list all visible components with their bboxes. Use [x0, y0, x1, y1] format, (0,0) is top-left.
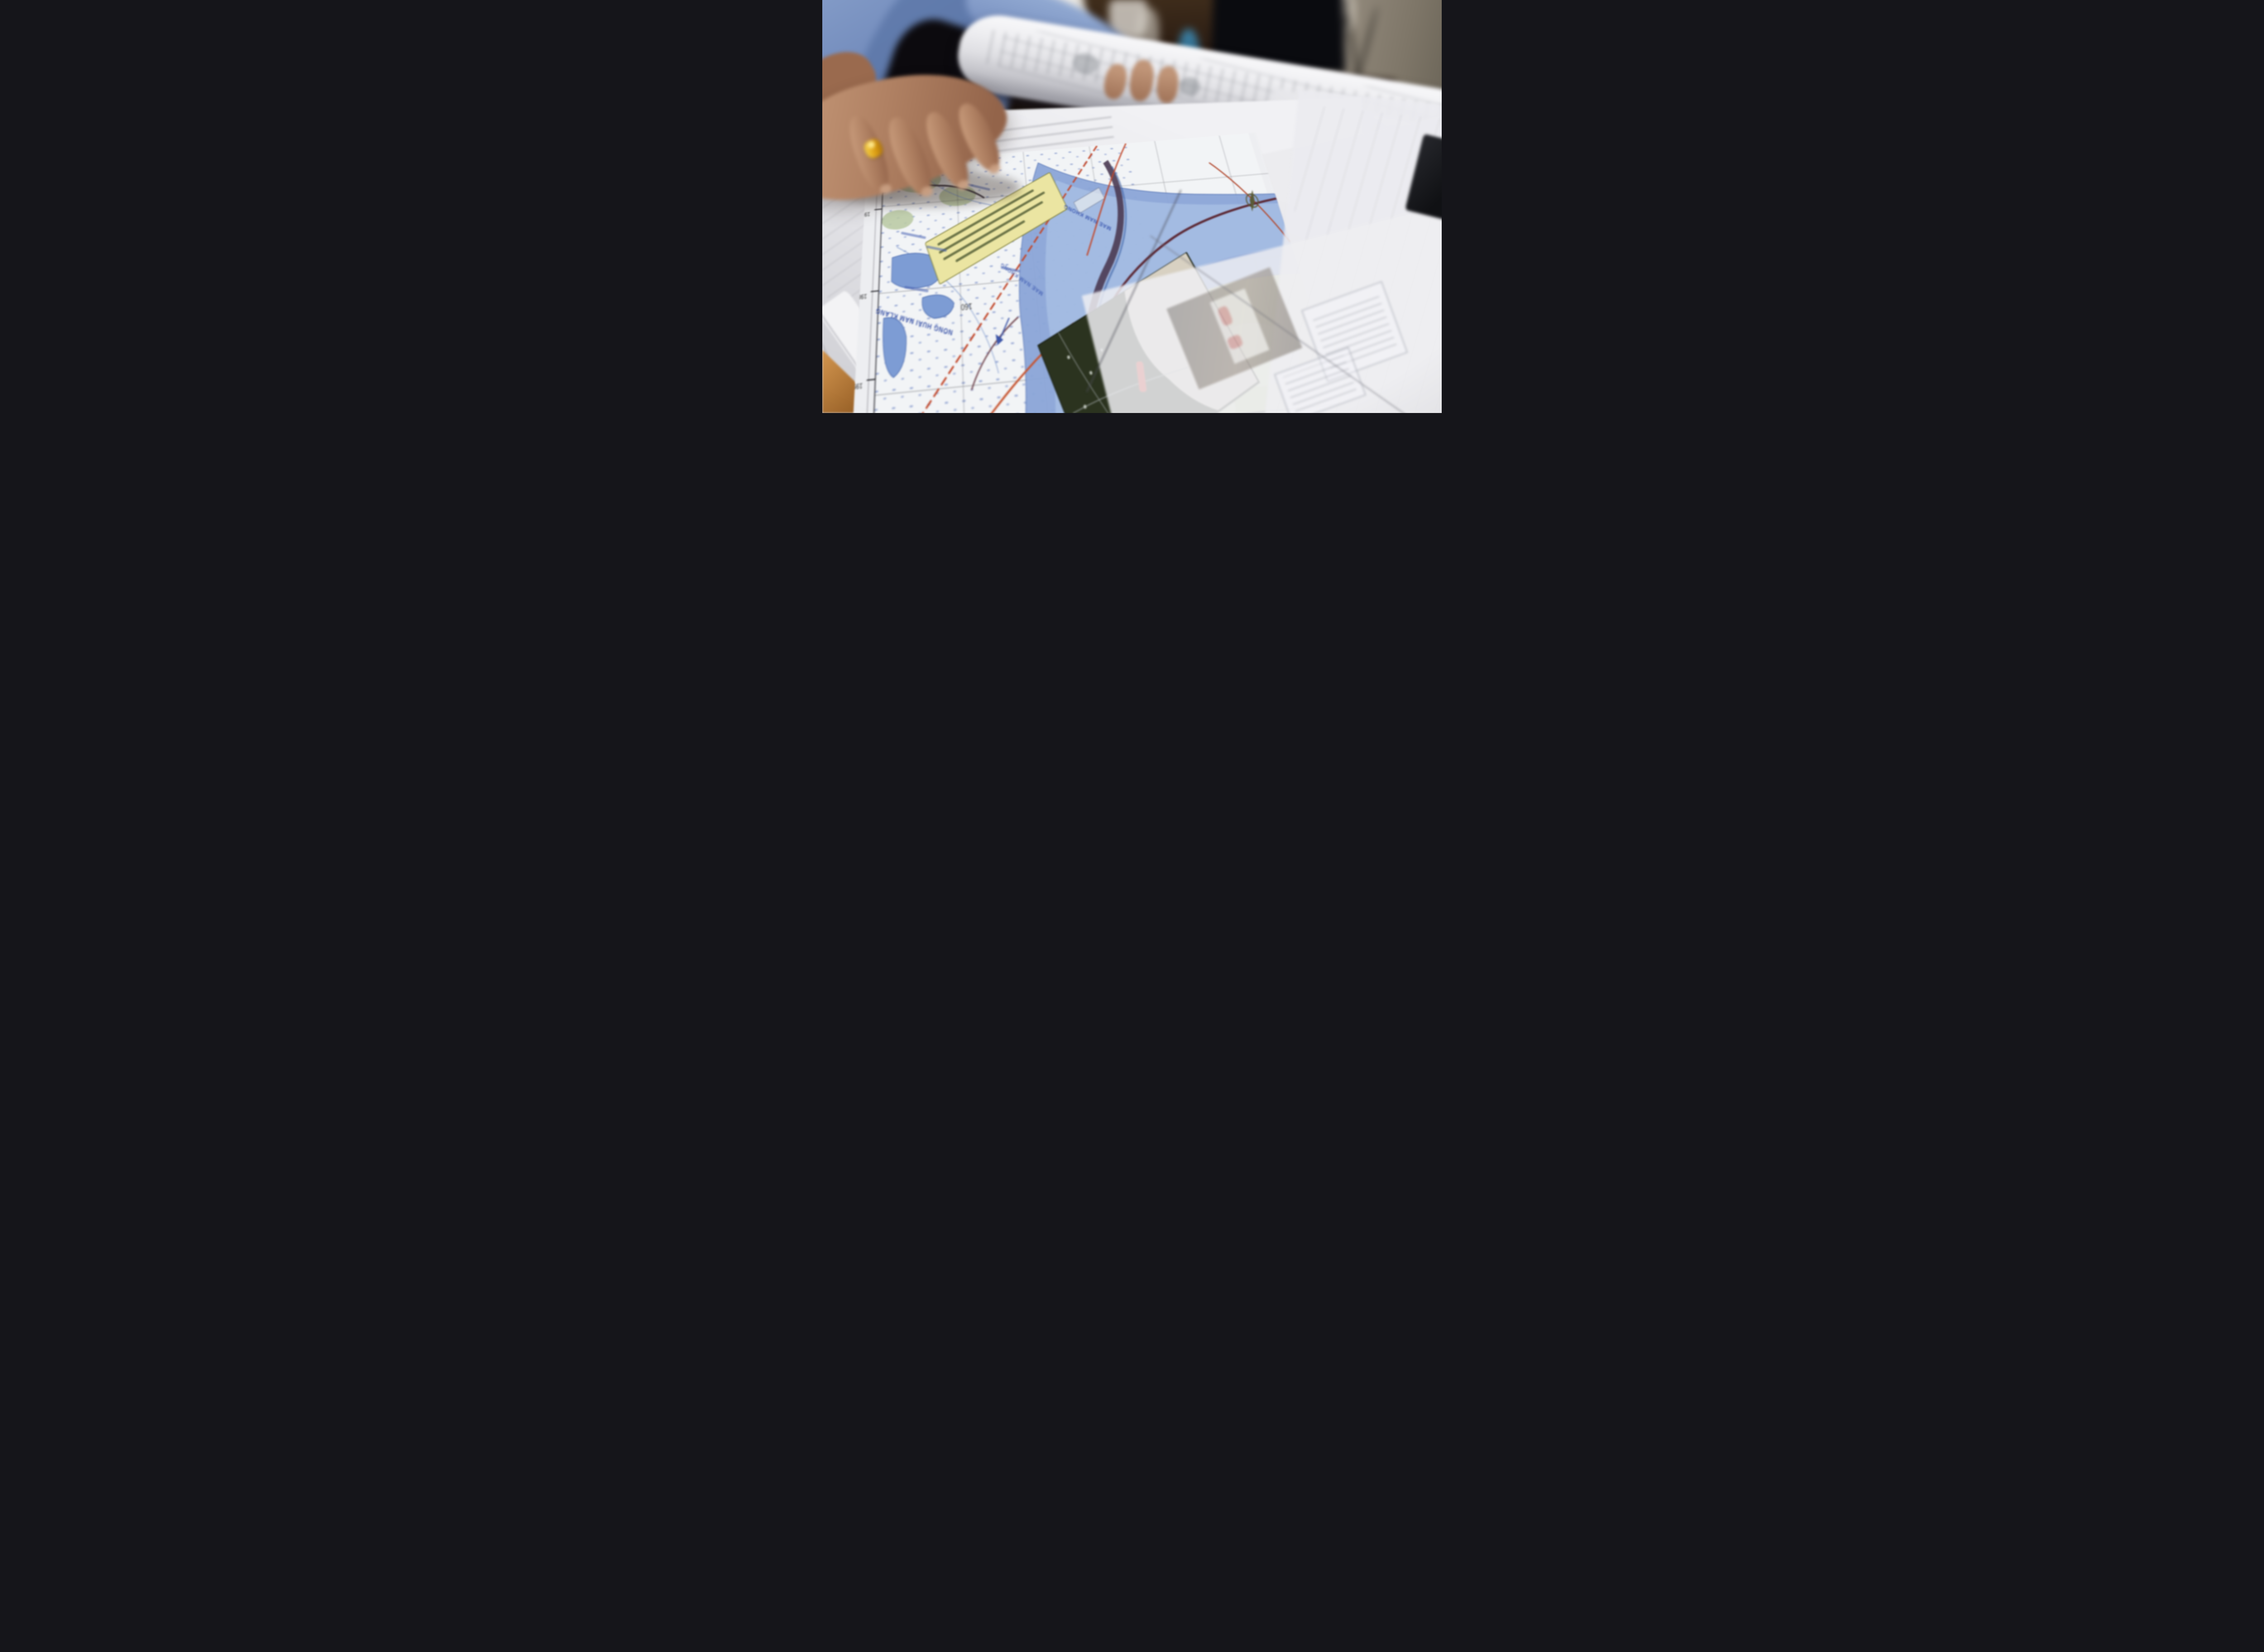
photo-map-review-scene: UT: [822, 0, 1442, 413]
vignette: [822, 0, 1442, 413]
